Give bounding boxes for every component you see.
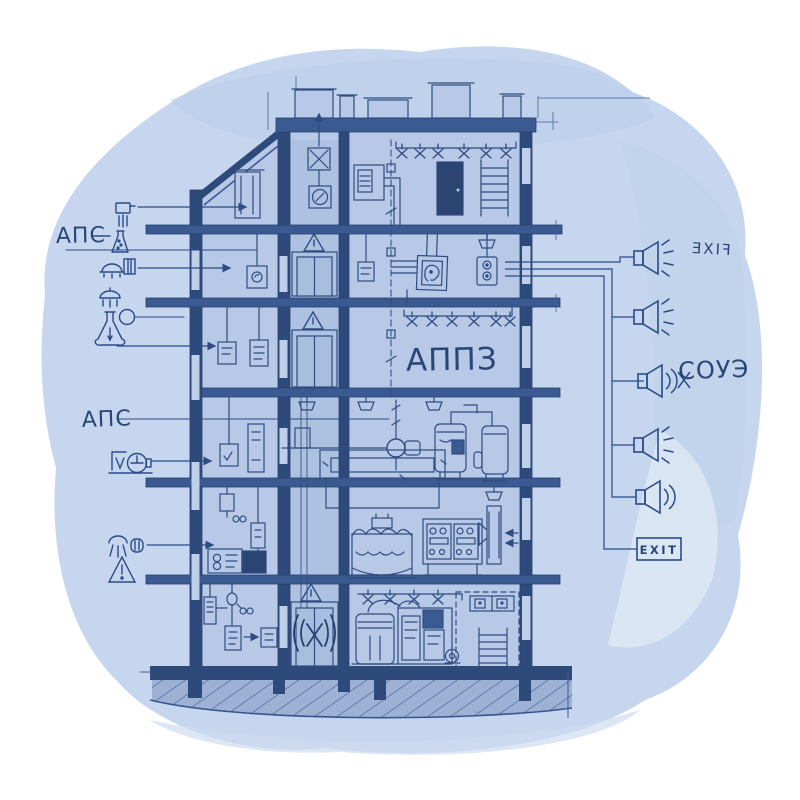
blueprint-scene: АПС АПС АППЗ СОУЭ FIXE EXIT [0,0,800,800]
appz-room-label: АППЗ [406,341,498,379]
aps-label-lower: АПС [81,406,132,433]
dark-cabinet [242,551,266,573]
mirrored-exit-label: FIXE [689,239,731,259]
blueprint-svg: АПС АПС АППЗ СОУЭ FIXE EXIT [0,0,800,800]
exit-sign-label: EXIT [640,543,679,557]
aps-label-upper: АПС [56,223,106,249]
souz-label: СОУЭ [678,355,750,385]
door [437,162,463,215]
